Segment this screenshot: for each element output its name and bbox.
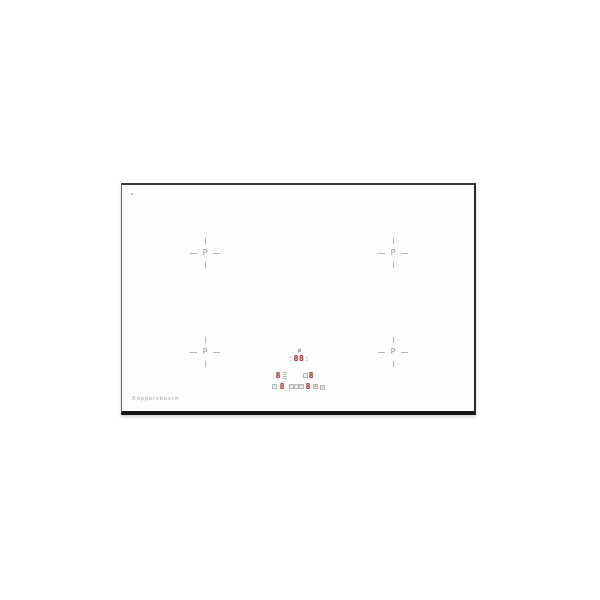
power-display-front-right: 8 [305,383,311,391]
brand-logo: Küppersbusch [132,397,179,402]
marker-dash [205,361,206,367]
timer-sensor-icon [298,349,301,352]
timer-digits: 88 [294,354,305,363]
marker-dash [393,262,394,268]
timer-display: :88: [282,354,316,363]
marker-dash [205,238,206,244]
power-display-rear-left: 8 [275,372,281,380]
timer-right-colon: : [304,354,309,363]
marker-dash [393,238,394,244]
marker-dash [393,361,394,367]
zone-marker-label: P [391,249,396,257]
zone-marker-front-left: P [190,337,220,367]
marker-dash [393,337,394,343]
zone-marker-rear-right: P [378,238,408,268]
marker-dash [213,253,220,254]
power-key: ○ [320,385,325,390]
zone-marker-label: P [391,348,396,356]
marker-dash [190,253,197,254]
marker-dash [190,352,197,353]
zone-indicator-icon [303,373,308,378]
timer-plus-key: + [299,384,304,389]
zone-marker-label: P [203,249,208,257]
timer-minus-key: − [289,384,294,389]
marker-dash [205,262,206,268]
marker-dash [378,352,385,353]
power-display-front-left: 8 [279,383,285,391]
zone-marker-label: P [203,348,208,356]
zone-marker-front-right: P [378,337,408,367]
induction-cooktop: P P P P :88: 8 8 • 8 − ◦ + 8 ▪ ○ Küppers… [121,183,476,415]
marker-dash [213,352,220,353]
marker-dash [401,352,408,353]
marker-dash [205,337,206,343]
zone-marker-rear-left: P [190,238,220,268]
pause-key: ▪ [313,384,318,389]
power-display-rear-right: 8 [308,372,314,380]
lock-icon: • [272,384,277,389]
marker-dash [401,253,408,254]
marker-dash [378,253,385,254]
corner-mark [131,193,133,195]
power-level-bars-icon [283,372,287,380]
timer-clock-icon: ◦ [294,384,299,389]
